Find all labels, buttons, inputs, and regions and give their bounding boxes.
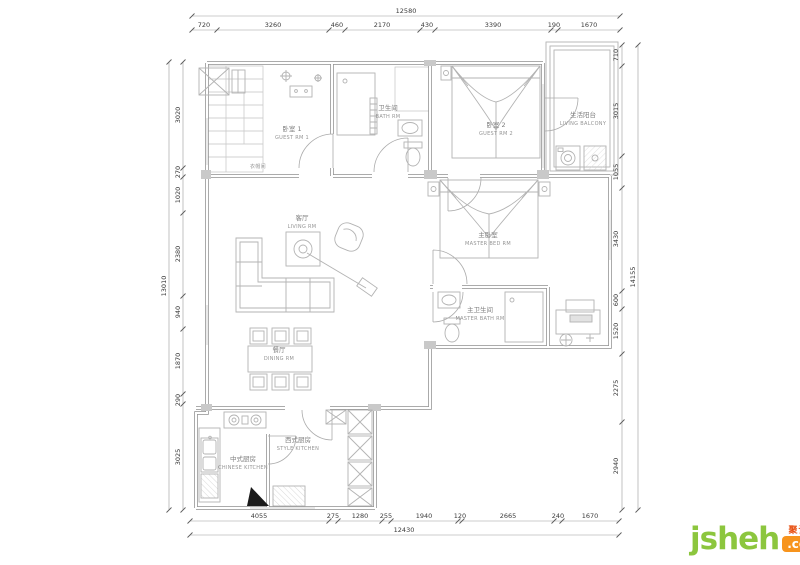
- dim-top-7: 1670: [581, 21, 598, 29]
- parquet-floor-guest-rm-1: [208, 66, 263, 172]
- dim-left-7: 3025: [174, 449, 182, 466]
- corner-unit-dark: [247, 487, 269, 506]
- floor-textures: [208, 66, 543, 342]
- dim-bottom-0: 4055: [251, 512, 268, 520]
- label-master-bath-en: MASTER BATH RM: [455, 316, 504, 322]
- balcony-window-frames: [546, 42, 618, 175]
- logo-tld-badge: .com: [782, 536, 800, 552]
- label-master-bed-en: MASTER BED RM: [465, 241, 511, 247]
- tv-table: [286, 232, 377, 296]
- label-bath-rm-zh: 卫生间: [378, 103, 398, 112]
- walls-outline: [196, 63, 610, 508]
- label-chinese-kitchen-zh: 中式厨房: [230, 454, 256, 463]
- dim-right-total: 14155: [629, 267, 637, 288]
- logo-stack: 聚设汇 .com: [782, 526, 800, 552]
- label-style-kitchen-en: STYLE KITCHEN: [277, 446, 319, 452]
- dim-right-4: 600: [612, 294, 620, 306]
- label-guest-rm-1-zh: 卧室 1: [282, 124, 301, 133]
- dim-left-4: 940: [174, 306, 182, 318]
- dim-top-3: 2170: [374, 21, 391, 29]
- floorplan-page: 卧室 1 GUEST RM 1 卫生间 BATH RM 卧室 2 GUEST R…: [0, 0, 800, 565]
- dim-top: 12580 720 3260 460 2170 430 3390 190 167…: [190, 7, 623, 33]
- stove-icon: [224, 412, 266, 428]
- label-bath-rm-en: BATH RM: [376, 114, 401, 120]
- dim-right-0: 710: [612, 49, 620, 61]
- dim-top-2: 460: [331, 21, 343, 29]
- dim-right: 710 3015 1055 3430 600 1520 2275 2940 14…: [612, 43, 641, 513]
- pebble-floor-bath: [395, 67, 429, 111]
- jsheh-logo: jsheh 聚设汇 .com: [690, 524, 800, 554]
- toilet-bath: [404, 142, 422, 166]
- dim-left: 3020 270 1020 2380 940 1870 290 3025 130…: [160, 60, 186, 513]
- shower-drain-master: [510, 298, 514, 302]
- door-master-bed: [433, 250, 467, 284]
- parquet-joints: [208, 66, 263, 172]
- label-living-balcony-zh: 生活阳台: [570, 110, 596, 119]
- dim-right-7: 2940: [612, 458, 620, 475]
- dresser-guest-rm-1: [290, 86, 312, 97]
- logo-word: jsheh: [690, 524, 779, 554]
- basin-master-bath: [438, 292, 460, 308]
- dim-bottom-4: 1940: [416, 512, 433, 520]
- dim-left-total: 13010: [160, 276, 168, 297]
- shower-tile-bath: [337, 73, 375, 135]
- label-dining-rm-en: DINING RM: [264, 356, 294, 362]
- armchair: [332, 220, 366, 254]
- washing-machine-icon: [556, 146, 580, 170]
- label-master-bed-zh: 主卧室: [478, 230, 498, 239]
- label-dining-rm-zh: 餐厅: [273, 345, 287, 354]
- label-living-balcony-en: LIVING BALCONY: [560, 121, 607, 127]
- dim-bottom-6: 2665: [500, 512, 517, 520]
- kitchen-counter-sink: [199, 428, 220, 502]
- floor-plan-canvas: 卧室 1 GUEST RM 1 卫生间 BATH RM 卧室 2 GUEST R…: [0, 0, 800, 565]
- sink-bath: [398, 120, 422, 136]
- dim-right-5: 1520: [612, 323, 620, 340]
- logo-cn-text: 聚设汇: [788, 526, 800, 536]
- shower-tile-master-bath: [505, 292, 543, 342]
- ceiling-fan-icon: [280, 70, 292, 82]
- label-master-bath-zh: 主卫生间: [467, 305, 493, 314]
- dim-bottom-7: 240: [552, 512, 564, 520]
- hatched-cabinet: [273, 486, 305, 506]
- label-living-rm-zh: 客厅: [296, 213, 310, 222]
- dim-right-3: 3430: [612, 231, 620, 248]
- dim-top-1: 3260: [265, 21, 282, 29]
- tall-cabinets: [326, 410, 372, 506]
- dim-left-5: 1870: [174, 353, 182, 370]
- dim-bottom-3: 255: [380, 512, 392, 520]
- label-guest-rm-2-zh: 卧室 2: [486, 120, 505, 129]
- dim-bottom-8: 1670: [582, 512, 599, 520]
- label-living-rm-en: LIVING RM: [288, 224, 317, 230]
- label-guest-rm-1-en: GUEST RM 1: [275, 135, 309, 141]
- bed-guest-rm-2: [441, 66, 540, 158]
- dim-top-0: 720: [198, 21, 210, 29]
- dim-top-5: 3390: [485, 21, 502, 29]
- sofa-l-shaped: [236, 238, 334, 312]
- spotlight-icon: [314, 74, 322, 82]
- dim-left-2: 1020: [174, 187, 182, 204]
- door-bath-rm: [374, 138, 408, 172]
- dim-top-total: 12580: [396, 7, 417, 15]
- dim-right-1: 3015: [612, 103, 620, 120]
- dim-top-6: 190: [548, 21, 560, 29]
- vanity-desk: [556, 300, 600, 346]
- dim-bottom-5: 120: [454, 512, 466, 520]
- label-style-kitchen-zh: 西式厨房: [285, 435, 311, 444]
- dim-bottom-total: 12430: [394, 526, 415, 534]
- label-guest-rm-2-en: GUEST RM 2: [479, 131, 513, 137]
- label-chinese-kitchen-en: CHINESE KITCHEN: [218, 465, 268, 471]
- dim-right-6: 2275: [612, 380, 620, 397]
- dim-left-1: 270: [174, 166, 182, 178]
- dim-left-3: 2380: [174, 246, 182, 263]
- dim-left-6: 290: [174, 394, 182, 406]
- dim-bottom-1: 275: [327, 512, 339, 520]
- dim-right-2: 1055: [612, 164, 620, 181]
- label-cloakroom-zh: 衣帽间: [250, 163, 266, 170]
- dim-bottom-2: 1280: [352, 512, 369, 520]
- dim-left-0: 3020: [174, 107, 182, 124]
- shower-drain: [343, 79, 347, 83]
- laundry-sink-icon: [584, 146, 606, 170]
- dim-bottom: 4055 275 1280 255 1940 120 2665 240 1670…: [188, 512, 622, 538]
- dim-top-4: 430: [421, 21, 433, 29]
